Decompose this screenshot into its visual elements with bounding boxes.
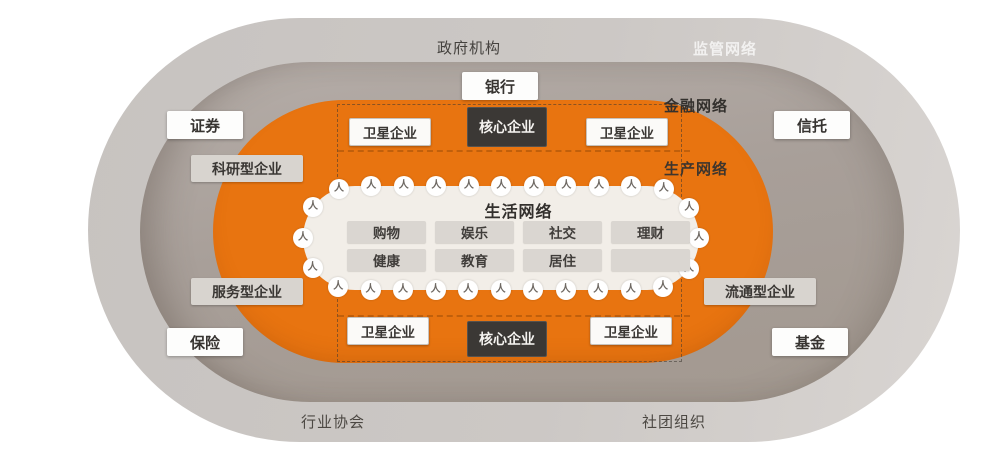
- person-icon: 人: [524, 176, 544, 196]
- life-item-education: 教育: [435, 249, 514, 271]
- person-icon: 人: [491, 280, 511, 300]
- satellite-enterprise-bottom-left: 卫星企业: [347, 317, 429, 345]
- life-items-grid: 购物 娱乐 社交 理财 健康 教育 居住: [347, 221, 690, 271]
- top-connector-dashed-line: [338, 150, 690, 152]
- government-agencies-label: 政府机构: [437, 37, 501, 58]
- bank-box: 银行: [462, 72, 538, 100]
- life-item-empty: [611, 249, 690, 271]
- trust-box: 信托: [774, 111, 850, 139]
- securities-box: 证券: [167, 111, 243, 139]
- person-icon: 人: [621, 280, 641, 300]
- life-item-social: 社交: [523, 221, 602, 243]
- fund-box: 基金: [772, 328, 848, 356]
- person-icon: 人: [293, 228, 313, 248]
- person-icon: 人: [393, 280, 413, 300]
- production-network-label: 生产网络: [664, 158, 728, 179]
- industry-association-label: 行业协会: [301, 411, 365, 432]
- life-item-finance: 理财: [611, 221, 690, 243]
- satellite-enterprise-top-right: 卫星企业: [586, 118, 668, 146]
- person-icon: 人: [394, 176, 414, 196]
- person-icon: 人: [361, 280, 381, 300]
- person-icon: 人: [589, 176, 609, 196]
- person-icon: 人: [426, 280, 446, 300]
- person-icon: 人: [329, 179, 349, 199]
- insurance-box: 保险: [167, 328, 243, 356]
- life-item-housing: 居住: [523, 249, 602, 271]
- person-icon: 人: [654, 179, 674, 199]
- life-item-shopping: 购物: [347, 221, 426, 243]
- research-enterprise-box: 科研型企业: [191, 155, 303, 182]
- satellite-enterprise-top-left: 卫星企业: [349, 118, 431, 146]
- satellite-enterprise-bottom-right: 卫星企业: [590, 317, 672, 345]
- life-network-title: 生活网络: [347, 198, 690, 222]
- person-icon: 人: [556, 280, 576, 300]
- ecosystem-diagram: 人人人人人人人人人人人人人人人人人人人人人人人人人人人人 生活网络 购物 娱乐 …: [0, 0, 983, 460]
- core-enterprise-bottom: 核心企业: [467, 321, 547, 357]
- service-enterprise-box: 服务型企业: [191, 278, 303, 305]
- circulation-enterprise-box: 流通型企业: [704, 278, 816, 305]
- person-icon: 人: [458, 280, 478, 300]
- person-icon: 人: [303, 258, 323, 278]
- core-enterprise-top: 核心企业: [467, 107, 547, 147]
- regulatory-network-label: 监管网络: [693, 38, 757, 59]
- life-item-entertainment: 娱乐: [435, 221, 514, 243]
- social-organization-label: 社团组织: [642, 411, 706, 432]
- life-item-health: 健康: [347, 249, 426, 271]
- financial-network-label: 金融网络: [664, 95, 728, 116]
- person-icon: 人: [459, 176, 479, 196]
